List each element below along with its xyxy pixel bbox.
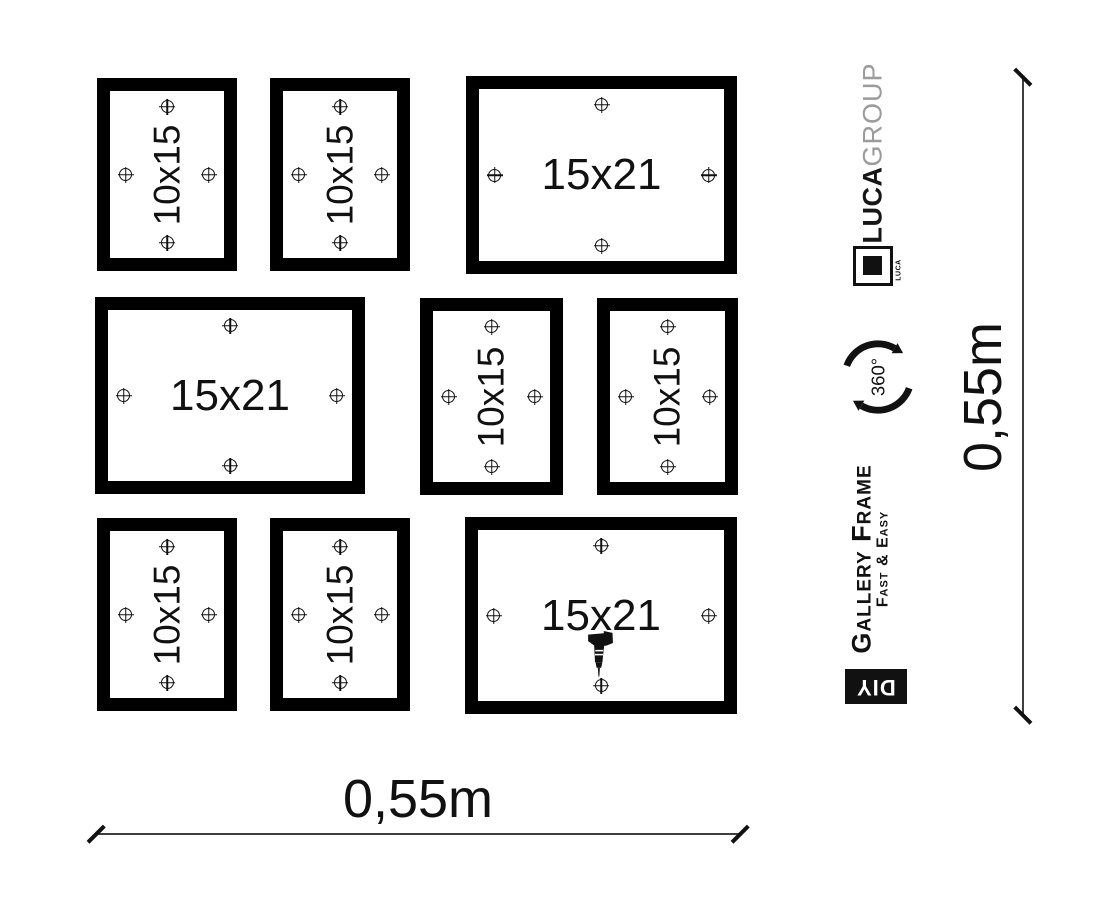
frame-15x21: 15x21 <box>95 297 365 494</box>
frame-size-label: 10x15 <box>471 346 513 447</box>
frame-size-label: 10x15 <box>319 564 361 665</box>
rotation-degrees-label: 360° <box>868 358 889 396</box>
frame-15x21: 15x21 <box>465 517 737 714</box>
crosshair-mark-icon <box>375 608 388 621</box>
frame-10x15: 10x15 <box>97 518 237 711</box>
crosshair-mark-icon <box>202 168 215 181</box>
crosshair-mark-icon <box>334 236 347 249</box>
frame-10x15: 10x15 <box>270 78 410 271</box>
luca-square-logo-icon <box>853 246 893 286</box>
brand-name-bold: LUCA <box>858 167 888 244</box>
crosshair-mark-icon <box>442 390 455 403</box>
frame-size-label: 10x15 <box>146 124 188 225</box>
crosshair-mark-icon <box>619 390 632 403</box>
frame-size-label: 15x21 <box>542 150 662 200</box>
frame-15x21: 15x21 <box>466 76 737 274</box>
diy-badge: DIY <box>845 669 907 704</box>
product-tagline: Fast & Easy <box>876 464 893 653</box>
frame-10x15: 10x15 <box>97 78 237 271</box>
crosshair-mark-icon <box>334 100 347 113</box>
crosshair-mark-icon <box>702 609 715 622</box>
crosshair-mark-icon <box>117 389 130 402</box>
crosshair-mark-icon <box>702 169 715 182</box>
frame-10x15: 10x15 <box>420 298 563 495</box>
diy-badge-label: DIY <box>856 674 896 700</box>
crosshair-mark-icon <box>595 539 608 552</box>
crosshair-mark-icon <box>375 168 388 181</box>
crosshair-mark-icon <box>595 679 608 692</box>
frame-size-label: 10x15 <box>647 346 689 447</box>
crosshair-mark-icon <box>703 390 716 403</box>
crosshair-mark-icon <box>224 319 237 332</box>
frame-10x15: 10x15 <box>270 518 410 711</box>
crosshair-mark-icon <box>595 98 608 111</box>
crosshair-mark-icon <box>161 676 174 689</box>
crosshair-mark-icon <box>202 608 215 621</box>
product-name-block: Gallery Frame Fast & Easy <box>847 464 892 653</box>
crosshair-mark-icon <box>330 389 343 402</box>
crosshair-mark-icon <box>119 168 132 181</box>
crosshair-mark-icon <box>485 320 498 333</box>
crosshair-mark-icon <box>661 320 674 333</box>
luca-logo-tiny-label: LUCA <box>896 259 903 280</box>
crosshair-mark-icon <box>334 540 347 553</box>
crosshair-mark-icon <box>161 540 174 553</box>
height-dimension-line <box>1022 76 1024 716</box>
product-name: Gallery Frame <box>847 464 875 653</box>
crosshair-mark-icon <box>595 239 608 252</box>
crosshair-mark-icon <box>487 609 500 622</box>
brand-logo-text: LUCAGROUP <box>858 62 889 243</box>
crosshair-mark-icon <box>292 608 305 621</box>
crosshair-mark-icon <box>334 676 347 689</box>
drill-icon <box>582 631 620 677</box>
frame-10x15: 10x15 <box>597 298 738 495</box>
width-dimension-line <box>95 833 740 835</box>
luca-logo-fill-square <box>863 256 882 275</box>
height-dimension-label: 0,55m <box>952 322 1014 472</box>
frame-size-label: 15x21 <box>170 371 290 421</box>
crosshair-mark-icon <box>119 608 132 621</box>
crosshair-mark-icon <box>161 100 174 113</box>
brand-name-light: GROUP <box>858 62 888 166</box>
width-dimension-label: 0,55m <box>343 768 493 830</box>
gallery-layout-diagram: 10x15 10x15 15x21 15x21 10x15 10x15 10x1… <box>0 0 1096 897</box>
crosshair-mark-icon <box>485 460 498 473</box>
crosshair-mark-icon <box>292 168 305 181</box>
frame-size-label: 10x15 <box>319 124 361 225</box>
crosshair-mark-icon <box>528 390 541 403</box>
frame-size-label: 10x15 <box>146 564 188 665</box>
crosshair-mark-icon <box>161 236 174 249</box>
crosshair-mark-icon <box>661 460 674 473</box>
rotation-360-icon: 360° <box>839 338 917 416</box>
crosshair-mark-icon <box>488 169 501 182</box>
crosshair-mark-icon <box>224 459 237 472</box>
